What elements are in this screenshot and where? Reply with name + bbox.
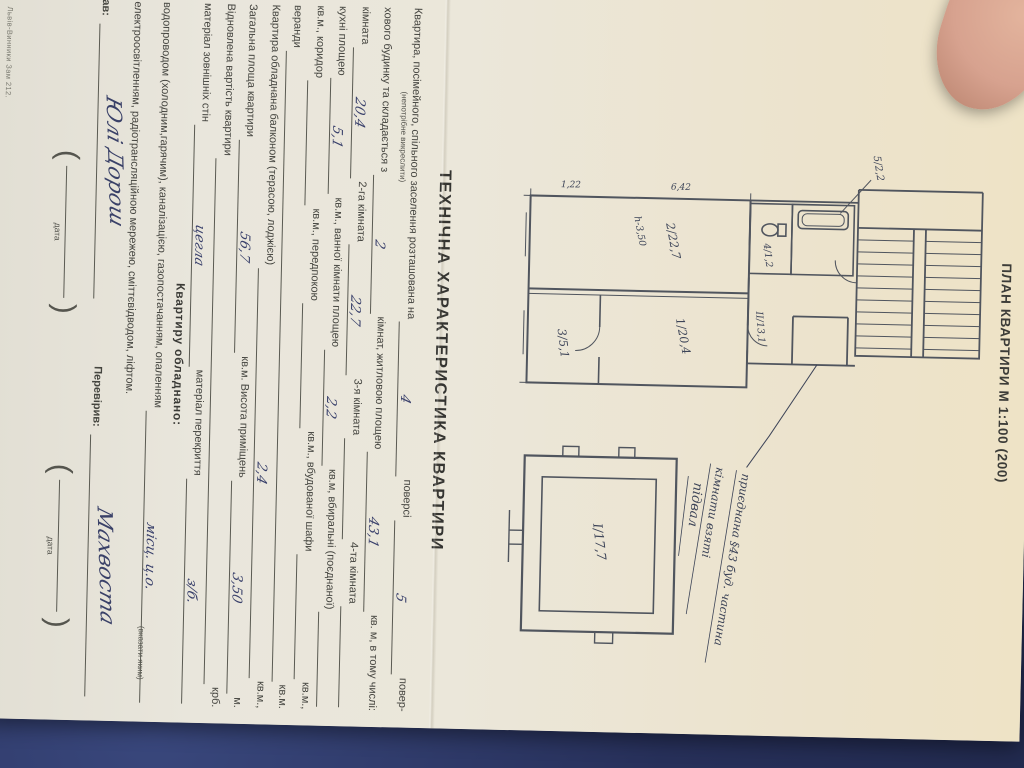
printed-text: м. [226,697,249,708]
printed-text: кімната [354,6,377,44]
checked-by-group: Перевірив: Махвоста [84,366,109,705]
printed-text: кв. м, в тому числі: [361,615,386,711]
document-page: ПЛАН КВАРТИРИ М 1:100 (200) [0,0,1024,742]
printed-text: матеріал зовнішніх стін [194,3,219,122]
height-note: h-3,50 [631,215,647,247]
handwritten-value: з/б. [180,576,203,607]
printed-text: крб. [203,687,226,708]
handwritten-value: 22,7 [344,292,367,328]
date-label-left: дата [53,223,63,241]
svg-text:підвал: підвал [685,482,706,528]
printed-text: матеріал перекриття [186,369,211,476]
made-by-signature-line: Юлі Дорош [93,24,116,299]
form-blank: 5,1 [328,78,347,194]
print-shop-imprint: Львів-Винники Зам 212. [4,6,15,98]
floor-plan: 2/22,7 1/20,4 3/5,1 4/1,2 5/2,2 ІІ/13,1 … [443,9,1005,742]
printed-text: кухні площею [330,6,354,76]
printed-text: кв.м., передпокою [303,208,328,301]
printed-text: кімнат, житловою площею [367,316,393,449]
form-blank: 4 [396,322,416,477]
corridor-label: ІІ/13,1 [753,310,767,344]
form-blank [342,438,360,539]
bathroom [791,204,855,275]
kitchen-label: 3/5,1 [555,328,572,359]
paper-sheet: ПЛАН КВАРТИРИ М 1:100 (200) [0,0,1024,742]
printed-text: кв.м, вбиральні (поєднаної) [318,469,344,610]
date-row: ( дата ) ( дата ) [40,0,86,704]
close-paren: ) [42,617,72,628]
form-blank [339,606,357,707]
dim-note-1: 6,42 [671,183,692,193]
printed-text: кв.м., [293,682,316,710]
floor-plan-drawing: 2/22,7 1/20,4 3/5,1 4/1,2 5/2,2 ІІ/13,1 … [443,9,1005,742]
form-blank: цегла [189,125,210,367]
form-blank: 43,1 [363,452,383,612]
staircase [855,190,983,359]
printed-text: кв.м. [271,684,294,709]
form-blank [300,304,319,429]
room-labels: 2/22,7 1/20,4 3/5,1 4/1,2 5/2,2 ІІ/13,1 … [554,148,886,366]
form-blank [316,612,334,707]
date-field-right: ( дата ) [42,463,76,628]
made-by-signature: Юлі Дорош [102,93,130,230]
printed-text: кв.м., [248,681,271,709]
printed-text: кв.м., вбудованої шафи [297,431,322,552]
printed-text: Відновлена вартість квартири [216,3,242,156]
room-2-label: 2/22,7 [663,220,684,260]
form-blank [305,81,324,206]
form-blank [294,554,313,679]
form-blank: 2 [370,175,389,314]
bath-label: 5/2,2 [871,155,886,182]
handwritten-value: 56,7 [233,228,256,264]
handwritten-value: місц. ц.о. [139,520,163,593]
printed-text: веранди [286,5,309,48]
checked-by-signature: Махвоста [93,504,120,628]
handwritten-value: 20,4 [348,95,371,131]
form-blank: 20,4 [351,47,370,178]
handwritten-value: цегла [188,222,211,269]
handwritten-value: 3,50 [225,569,248,605]
checked-by-signature-line: Махвоста [84,435,107,697]
form-blank: 22,7 [346,245,365,376]
handwritten-value: 5 [389,590,412,605]
made-by-label: Склав: [100,0,113,16]
close-paren: ) [49,304,79,315]
form-blank: з/б. [181,478,202,704]
handwritten-value: 2,2 [319,394,342,422]
signature-row: Склав: Юлі Дорош Перевірив: Махвоста [84,0,117,705]
printed-text: 3-я кімната [345,378,369,435]
basement-plan [507,445,677,645]
date-label-right: дата [46,537,56,555]
plan-annotation: приєднана §43 буд. частина кімнати взяті [685,362,817,665]
checked-by-label: Перевірив: [90,366,103,427]
printed-text: поверсі [395,479,418,517]
printed-text: Загальна площа квартири [239,4,265,137]
handwritten-value: 2,4 [250,459,273,487]
printed-text: повер- [390,678,413,712]
printed-text: хового будинку та складається з [373,7,399,173]
form-blank: 5 [391,520,411,675]
form-blank: 2,2 [321,350,340,466]
open-paren: ( [45,463,75,474]
handwritten-value: 43,1 [361,514,384,550]
dim-note-2: 1,22 [561,180,582,190]
handwritten-value: 4 [394,392,417,407]
basement-room-label: І/17,7 [590,522,609,562]
handwritten-value: 5,1 [325,123,348,151]
handwritten-value: 2 [368,237,391,252]
open-paren: ( [52,150,82,161]
form-blank: 3,50 [226,481,247,695]
form-blank: 56,7 [234,140,255,354]
wc-label: 4/1,2 [761,242,775,268]
date-field-left: ( дата ) [49,150,83,315]
made-by-group: Склав: Юлі Дорош [93,0,117,306]
room-1-label: 1/20,4 [673,317,694,356]
printed-text: кв.м., коридор [308,5,332,78]
printed-text: 4-та кімната [341,542,365,604]
printed-text: 2-га кімната [349,181,373,242]
